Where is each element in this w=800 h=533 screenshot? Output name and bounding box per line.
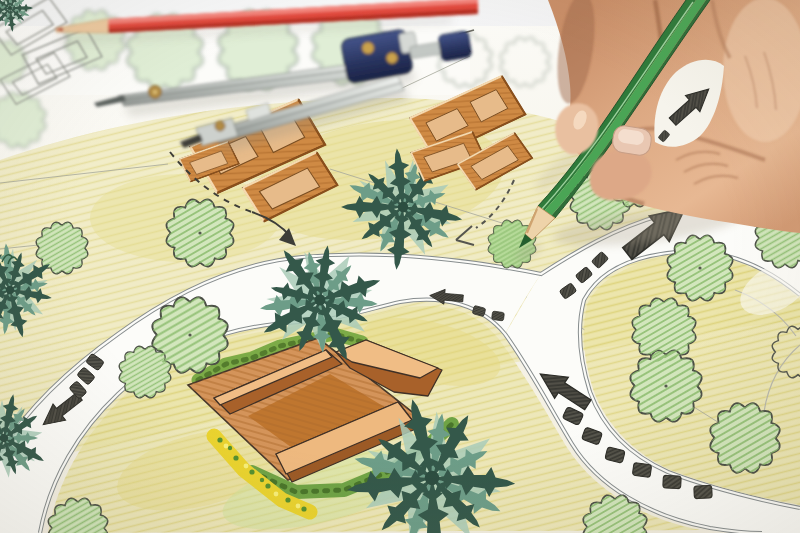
photo-landscape-plan-drawing: Landscape architect hand-drawing a garde… — [0, 0, 800, 533]
vignette — [0, 0, 800, 533]
